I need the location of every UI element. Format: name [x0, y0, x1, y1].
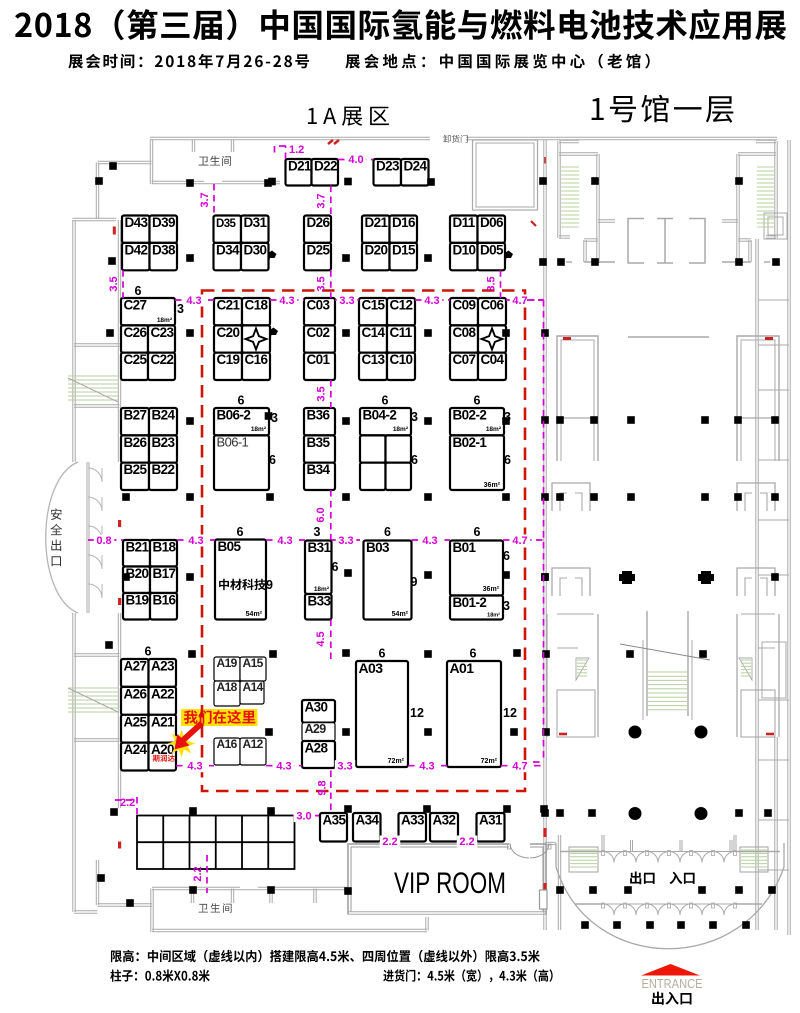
svg-text:4.0: 4.0 [348, 154, 363, 166]
svg-text:3.5: 3.5 [316, 386, 328, 401]
svg-text:6: 6 [237, 525, 244, 539]
svg-text:4.3: 4.3 [276, 761, 291, 773]
svg-text:D38: D38 [152, 242, 176, 257]
svg-text:3.3: 3.3 [337, 761, 352, 773]
svg-text:B04-2: B04-2 [363, 408, 397, 423]
svg-text:4.3: 4.3 [419, 761, 434, 773]
svg-text:B06-2: B06-2 [217, 408, 251, 423]
svg-text:D11: D11 [453, 215, 476, 230]
svg-text:B21: B21 [126, 540, 150, 555]
svg-text:C07: C07 [453, 352, 476, 367]
svg-text:A01: A01 [450, 660, 475, 676]
svg-text:A27: A27 [124, 659, 147, 674]
svg-text:D42: D42 [125, 242, 148, 257]
svg-text:C01: C01 [307, 352, 331, 367]
svg-text:A16: A16 [217, 737, 238, 751]
svg-text:A19: A19 [217, 656, 238, 670]
svg-text:B23: B23 [152, 435, 176, 450]
svg-text:18m²: 18m² [393, 426, 409, 433]
svg-text:6: 6 [379, 647, 386, 661]
svg-text:D23: D23 [376, 159, 400, 174]
svg-text:3.0: 3.0 [296, 811, 311, 823]
svg-text:72m²: 72m² [481, 758, 498, 765]
svg-text:D10: D10 [453, 242, 476, 257]
svg-text:B36: B36 [307, 408, 331, 423]
svg-text:D35: D35 [216, 218, 237, 230]
svg-text:B27: B27 [124, 408, 147, 423]
svg-text:C04: C04 [481, 352, 505, 367]
svg-text:C23: C23 [151, 325, 175, 340]
svg-text:4.3: 4.3 [279, 295, 294, 307]
svg-text:A25: A25 [124, 714, 148, 729]
svg-text:12: 12 [410, 706, 424, 720]
svg-text:A18: A18 [217, 680, 238, 694]
svg-text:72m²: 72m² [388, 758, 405, 765]
svg-text:B33: B33 [308, 594, 332, 609]
svg-text:12: 12 [503, 706, 517, 720]
svg-text:B17: B17 [153, 566, 176, 581]
svg-text:4.3: 4.3 [277, 535, 292, 547]
svg-text:6: 6 [384, 525, 391, 539]
svg-text:4.3: 4.3 [187, 761, 202, 773]
svg-text:0.8: 0.8 [96, 535, 111, 547]
svg-text:3: 3 [411, 410, 418, 424]
svg-text:A03: A03 [359, 660, 384, 676]
svg-text:6: 6 [332, 560, 339, 574]
svg-text:C20: C20 [217, 325, 240, 340]
svg-text:6: 6 [470, 647, 477, 661]
svg-text:4.5: 4.5 [315, 631, 327, 646]
svg-text:1.2: 1.2 [289, 144, 304, 156]
svg-text:A35: A35 [323, 813, 347, 828]
svg-text:3.5: 3.5 [486, 276, 498, 291]
svg-text:A21: A21 [151, 714, 175, 729]
svg-text:6: 6 [474, 525, 481, 539]
svg-text:D20: D20 [365, 242, 388, 257]
svg-text:36m²: 36m² [483, 586, 500, 593]
svg-text:B35: B35 [307, 435, 331, 450]
svg-text:C22: C22 [151, 352, 174, 367]
svg-text:6: 6 [145, 645, 152, 659]
svg-text:54m²: 54m² [246, 611, 263, 618]
svg-text:C25: C25 [124, 352, 148, 367]
svg-text:18m²: 18m² [251, 426, 267, 433]
svg-text:D25: D25 [307, 242, 331, 257]
svg-text:18m²: 18m² [314, 586, 330, 593]
svg-text:C11: C11 [390, 325, 413, 340]
svg-text:B03: B03 [366, 540, 390, 555]
svg-text:A23: A23 [151, 659, 175, 674]
svg-text:C14: C14 [362, 325, 386, 340]
svg-text:3.5: 3.5 [316, 276, 328, 291]
svg-text:6: 6 [238, 394, 245, 408]
svg-text:6: 6 [474, 394, 481, 408]
svg-text:3.7: 3.7 [316, 193, 328, 208]
svg-text:3.3: 3.3 [339, 295, 354, 307]
svg-text:C06: C06 [481, 298, 505, 313]
svg-text:B25: B25 [124, 462, 148, 477]
svg-text:B06-1: B06-1 [217, 434, 249, 449]
svg-text:18m²: 18m² [487, 612, 500, 619]
svg-text:2.2: 2.2 [382, 836, 397, 848]
svg-text:D31: D31 [244, 215, 268, 230]
svg-text:C18: C18 [245, 298, 269, 313]
svg-text:54m²: 54m² [392, 611, 409, 618]
svg-text:B24: B24 [152, 408, 176, 423]
svg-text:D22: D22 [314, 159, 337, 174]
svg-text:6: 6 [504, 453, 511, 467]
svg-text:C02: C02 [307, 325, 330, 340]
svg-text:D16: D16 [392, 215, 416, 230]
svg-text:C03: C03 [307, 298, 331, 313]
svg-text:A31: A31 [479, 813, 503, 828]
svg-text:C12: C12 [390, 298, 413, 313]
svg-text:3: 3 [503, 599, 510, 613]
svg-text:9.8: 9.8 [317, 780, 329, 795]
svg-text:C15: C15 [362, 298, 386, 313]
svg-text:3.5: 3.5 [108, 276, 120, 291]
svg-text:D43: D43 [125, 215, 149, 230]
svg-text:2.2: 2.2 [192, 866, 204, 881]
svg-text:B34: B34 [307, 462, 331, 477]
svg-text:C27: C27 [124, 298, 147, 313]
svg-text:B19: B19 [126, 593, 149, 608]
svg-text:D21: D21 [288, 159, 312, 174]
svg-text:4.7: 4.7 [512, 761, 527, 773]
svg-text:A28: A28 [305, 741, 329, 756]
svg-text:B31: B31 [308, 540, 332, 555]
svg-text:4.3: 4.3 [186, 295, 201, 307]
svg-text:A24: A24 [124, 742, 148, 757]
svg-text:6: 6 [382, 394, 389, 408]
svg-text:VIP ROOM: VIP ROOM [394, 867, 506, 900]
svg-text:A15: A15 [243, 656, 264, 670]
svg-text:A34: A34 [356, 813, 380, 828]
svg-text:B01-2: B01-2 [453, 595, 487, 610]
svg-text:A30: A30 [305, 700, 328, 715]
svg-text:B02-2: B02-2 [453, 408, 487, 423]
svg-text:18m²: 18m² [157, 317, 173, 324]
svg-text:C21: C21 [217, 298, 241, 313]
svg-text:9: 9 [266, 578, 273, 592]
svg-text:C09: C09 [453, 298, 476, 313]
svg-text:4.7: 4.7 [512, 295, 527, 307]
svg-text:A26: A26 [124, 686, 148, 701]
svg-text:D39: D39 [152, 215, 175, 230]
svg-text:B05: B05 [218, 539, 242, 554]
svg-text:B22: B22 [152, 462, 175, 477]
svg-text:18m²: 18m² [486, 426, 502, 433]
svg-text:6: 6 [411, 453, 418, 467]
svg-text:4.3: 4.3 [188, 535, 203, 547]
svg-text:A29: A29 [305, 722, 327, 736]
svg-text:D21: D21 [365, 215, 389, 230]
svg-text:A22: A22 [151, 686, 174, 701]
svg-text:D15: D15 [392, 242, 416, 257]
svg-text:D30: D30 [244, 242, 267, 257]
svg-text:3: 3 [177, 302, 184, 316]
svg-text:4.3: 4.3 [424, 295, 439, 307]
svg-text:A32: A32 [433, 813, 456, 828]
svg-text:4.7: 4.7 [512, 535, 527, 547]
svg-text:9: 9 [411, 575, 418, 589]
svg-text:6.0: 6.0 [315, 507, 327, 522]
svg-text:B02-1: B02-1 [453, 435, 488, 450]
svg-text:C19: C19 [217, 352, 240, 367]
svg-text:3: 3 [314, 525, 321, 539]
svg-text:C26: C26 [124, 325, 148, 340]
svg-text:D06: D06 [480, 215, 504, 230]
svg-text:D24: D24 [404, 159, 428, 174]
svg-text:A14: A14 [243, 680, 264, 694]
svg-text:B18: B18 [153, 540, 177, 555]
svg-text:3.7: 3.7 [199, 192, 211, 207]
svg-text:A12: A12 [243, 737, 264, 751]
svg-text:D05: D05 [480, 242, 504, 257]
svg-text:C08: C08 [453, 325, 477, 340]
svg-text:6: 6 [135, 284, 142, 298]
svg-text:D34: D34 [216, 242, 240, 257]
svg-text:A33: A33 [401, 813, 425, 828]
svg-text:B16: B16 [153, 593, 177, 608]
svg-text:C10: C10 [390, 352, 413, 367]
svg-text:B26: B26 [124, 435, 148, 450]
svg-text:C13: C13 [362, 352, 386, 367]
svg-text:B01: B01 [453, 540, 477, 555]
svg-text:6: 6 [503, 549, 510, 563]
svg-text:ENTRANCE: ENTRANCE [642, 976, 703, 991]
svg-text:2.2: 2.2 [459, 836, 474, 848]
svg-text:3.3: 3.3 [338, 535, 353, 547]
svg-text:2.2: 2.2 [120, 797, 135, 809]
svg-text:36m²: 36m² [484, 482, 501, 489]
svg-text:C16: C16 [245, 352, 269, 367]
svg-text:6: 6 [269, 453, 276, 467]
svg-text:D26: D26 [307, 215, 331, 230]
svg-text:4.3: 4.3 [422, 535, 437, 547]
